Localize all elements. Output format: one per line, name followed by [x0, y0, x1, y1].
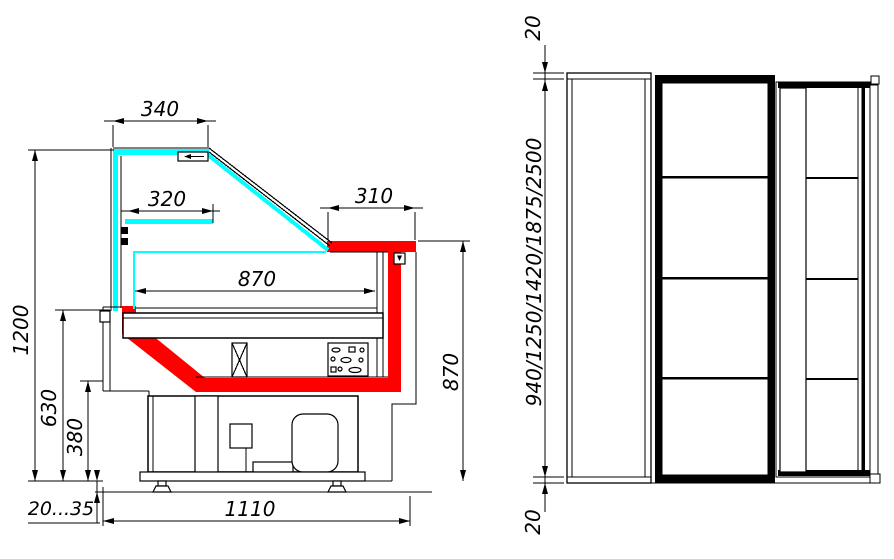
slope-glass-outer-line [209, 148, 332, 243]
right-frame [870, 85, 878, 475]
canopy-width-label: 340 [141, 97, 179, 121]
dim-1200-arrow-t [32, 150, 38, 161]
counter-height-label: 870 [439, 353, 463, 391]
dim-870v-arrow-b [460, 470, 466, 481]
bottom-right-corner-block [870, 474, 880, 483]
technical-drawing-page: 340 320 310 870 1200 630 380 870 1110 20… [0, 0, 894, 559]
dim-870h-arrow-l [135, 288, 146, 294]
small-unit-box [230, 424, 252, 448]
tray [253, 462, 293, 472]
display-deck [123, 313, 383, 338]
foot-left-pad [153, 486, 171, 492]
foot-right-pad [328, 486, 346, 492]
dim-340-arrow-l [113, 118, 124, 124]
shelf-glass [125, 219, 213, 224]
dim-870h-arrow-r [364, 288, 375, 294]
deck-width-label: 870 [238, 267, 276, 291]
front-view: 20 940/1250/1420/1875/2500 20 [521, 15, 880, 534]
dim-arrow-top-down [542, 62, 548, 73]
glass-base-height-label: 630 [37, 389, 61, 427]
slope-glass [208, 155, 328, 250]
shelf-width-label: 320 [148, 187, 186, 211]
dim-340-arrow-r [197, 118, 208, 124]
length-options-label: 940/1250/1420/1875/2500 [522, 138, 546, 407]
side-panel [567, 73, 651, 483]
dim-1110-arrow-r [399, 518, 410, 524]
dim-630-arrow-b [60, 470, 66, 481]
foot-left-stem [158, 481, 166, 486]
red-bottom-band [196, 378, 401, 392]
foot-right-stem [333, 481, 341, 486]
dim-310-arrow-r [404, 205, 415, 211]
red-counter-ledge [327, 241, 416, 252]
overall-depth-label: 1110 [225, 497, 276, 521]
dim-310-arrow-l [328, 205, 339, 211]
door1-top-band [655, 75, 775, 83]
feet-range-label: 20...35 [28, 498, 94, 520]
door2-stile [780, 88, 806, 472]
shelf-clip-lower [121, 238, 128, 245]
dim-1110-arrow-l [103, 518, 114, 524]
drawing-canvas: 340 320 310 870 1200 630 380 870 1110 20… [0, 0, 894, 559]
slope-glass-inner-line [209, 152, 330, 246]
top-gap-label: 20 [521, 15, 545, 40]
dim-320-arrow-r [202, 208, 213, 214]
dim-870v-arrow-t [460, 241, 466, 252]
overall-height-label: 1200 [9, 305, 33, 356]
inner-liner [134, 252, 326, 309]
door1-left-stile [655, 83, 662, 475]
red-front-column [388, 249, 401, 385]
base-rail [140, 472, 365, 481]
shelf-clip-upper [121, 227, 128, 234]
front-body [567, 73, 880, 483]
compartment-divider [195, 396, 218, 472]
dim-feet-arrow-t [94, 470, 100, 481]
ledge-width-label: 310 [355, 184, 393, 208]
door1-right-stile [768, 83, 775, 475]
front-glass-vertical [113, 149, 118, 311]
dim-380-arrow-b [85, 470, 91, 481]
dim-arrow-bottom-down [542, 466, 548, 477]
front-view-dim-labels: 20 940/1250/1420/1875/2500 20 [521, 15, 546, 534]
dim-feet-arrow-b [94, 492, 100, 503]
dim-arrow-top-up [542, 80, 548, 91]
glass-elements [111, 148, 332, 311]
dim-630-arrow-t [60, 310, 66, 321]
dim-1200-arrow-b [32, 470, 38, 481]
top-right-corner-block [871, 76, 879, 84]
door1-bottom-band [655, 475, 775, 483]
left-bracket [100, 311, 110, 322]
dim-380-arrow-t [85, 381, 91, 392]
dim-arrow-bottom-up [542, 483, 548, 494]
bottom-gap-label: 20 [521, 509, 545, 534]
dim-320-arrow-l [128, 208, 139, 214]
door2-top-band [778, 82, 872, 88]
kick-height-label: 380 [63, 418, 87, 456]
side-view: 340 320 310 870 1200 630 380 870 1110 20… [9, 97, 470, 526]
compressor [292, 414, 338, 472]
